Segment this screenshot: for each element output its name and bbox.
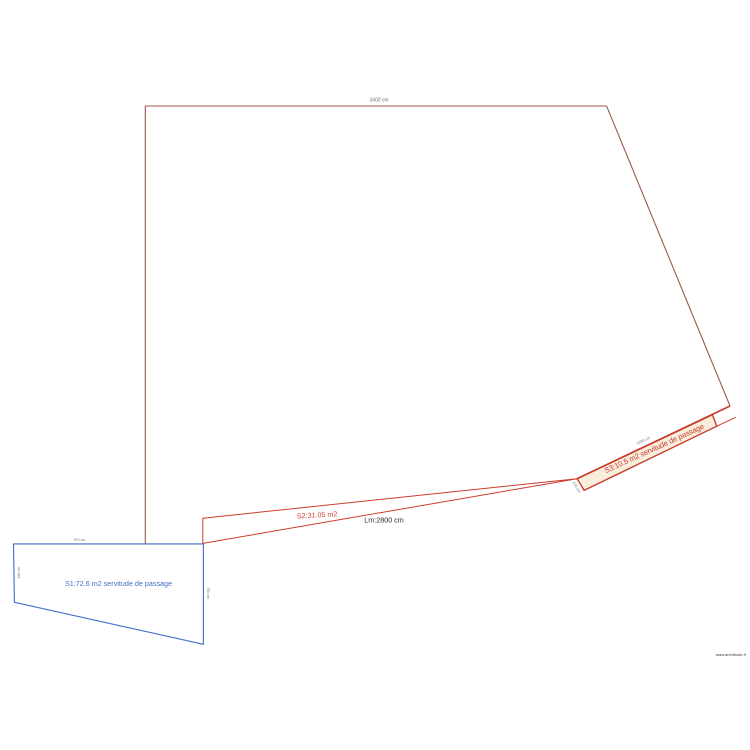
svg-text:S2:31.05 m2: S2:31.05 m2 — [296, 509, 337, 520]
svg-text:700 cm: 700 cm — [206, 587, 210, 599]
svg-text:970 cm: 970 cm — [74, 538, 86, 542]
svg-text:Lm:2800 cm: Lm:2800 cm — [364, 515, 404, 524]
svg-text:www.archifacile.fr: www.archifacile.fr — [716, 652, 747, 657]
svg-text:3400 cm: 3400 cm — [369, 98, 388, 104]
svg-text:S1:72.6 m2 servitude de passag: S1:72.6 m2 servitude de passage — [65, 579, 172, 588]
svg-text:430 cm: 430 cm — [17, 567, 21, 579]
svg-text:S3:10.5 m2 servitude de passag: S3:10.5 m2 servitude de passage — [603, 422, 705, 475]
